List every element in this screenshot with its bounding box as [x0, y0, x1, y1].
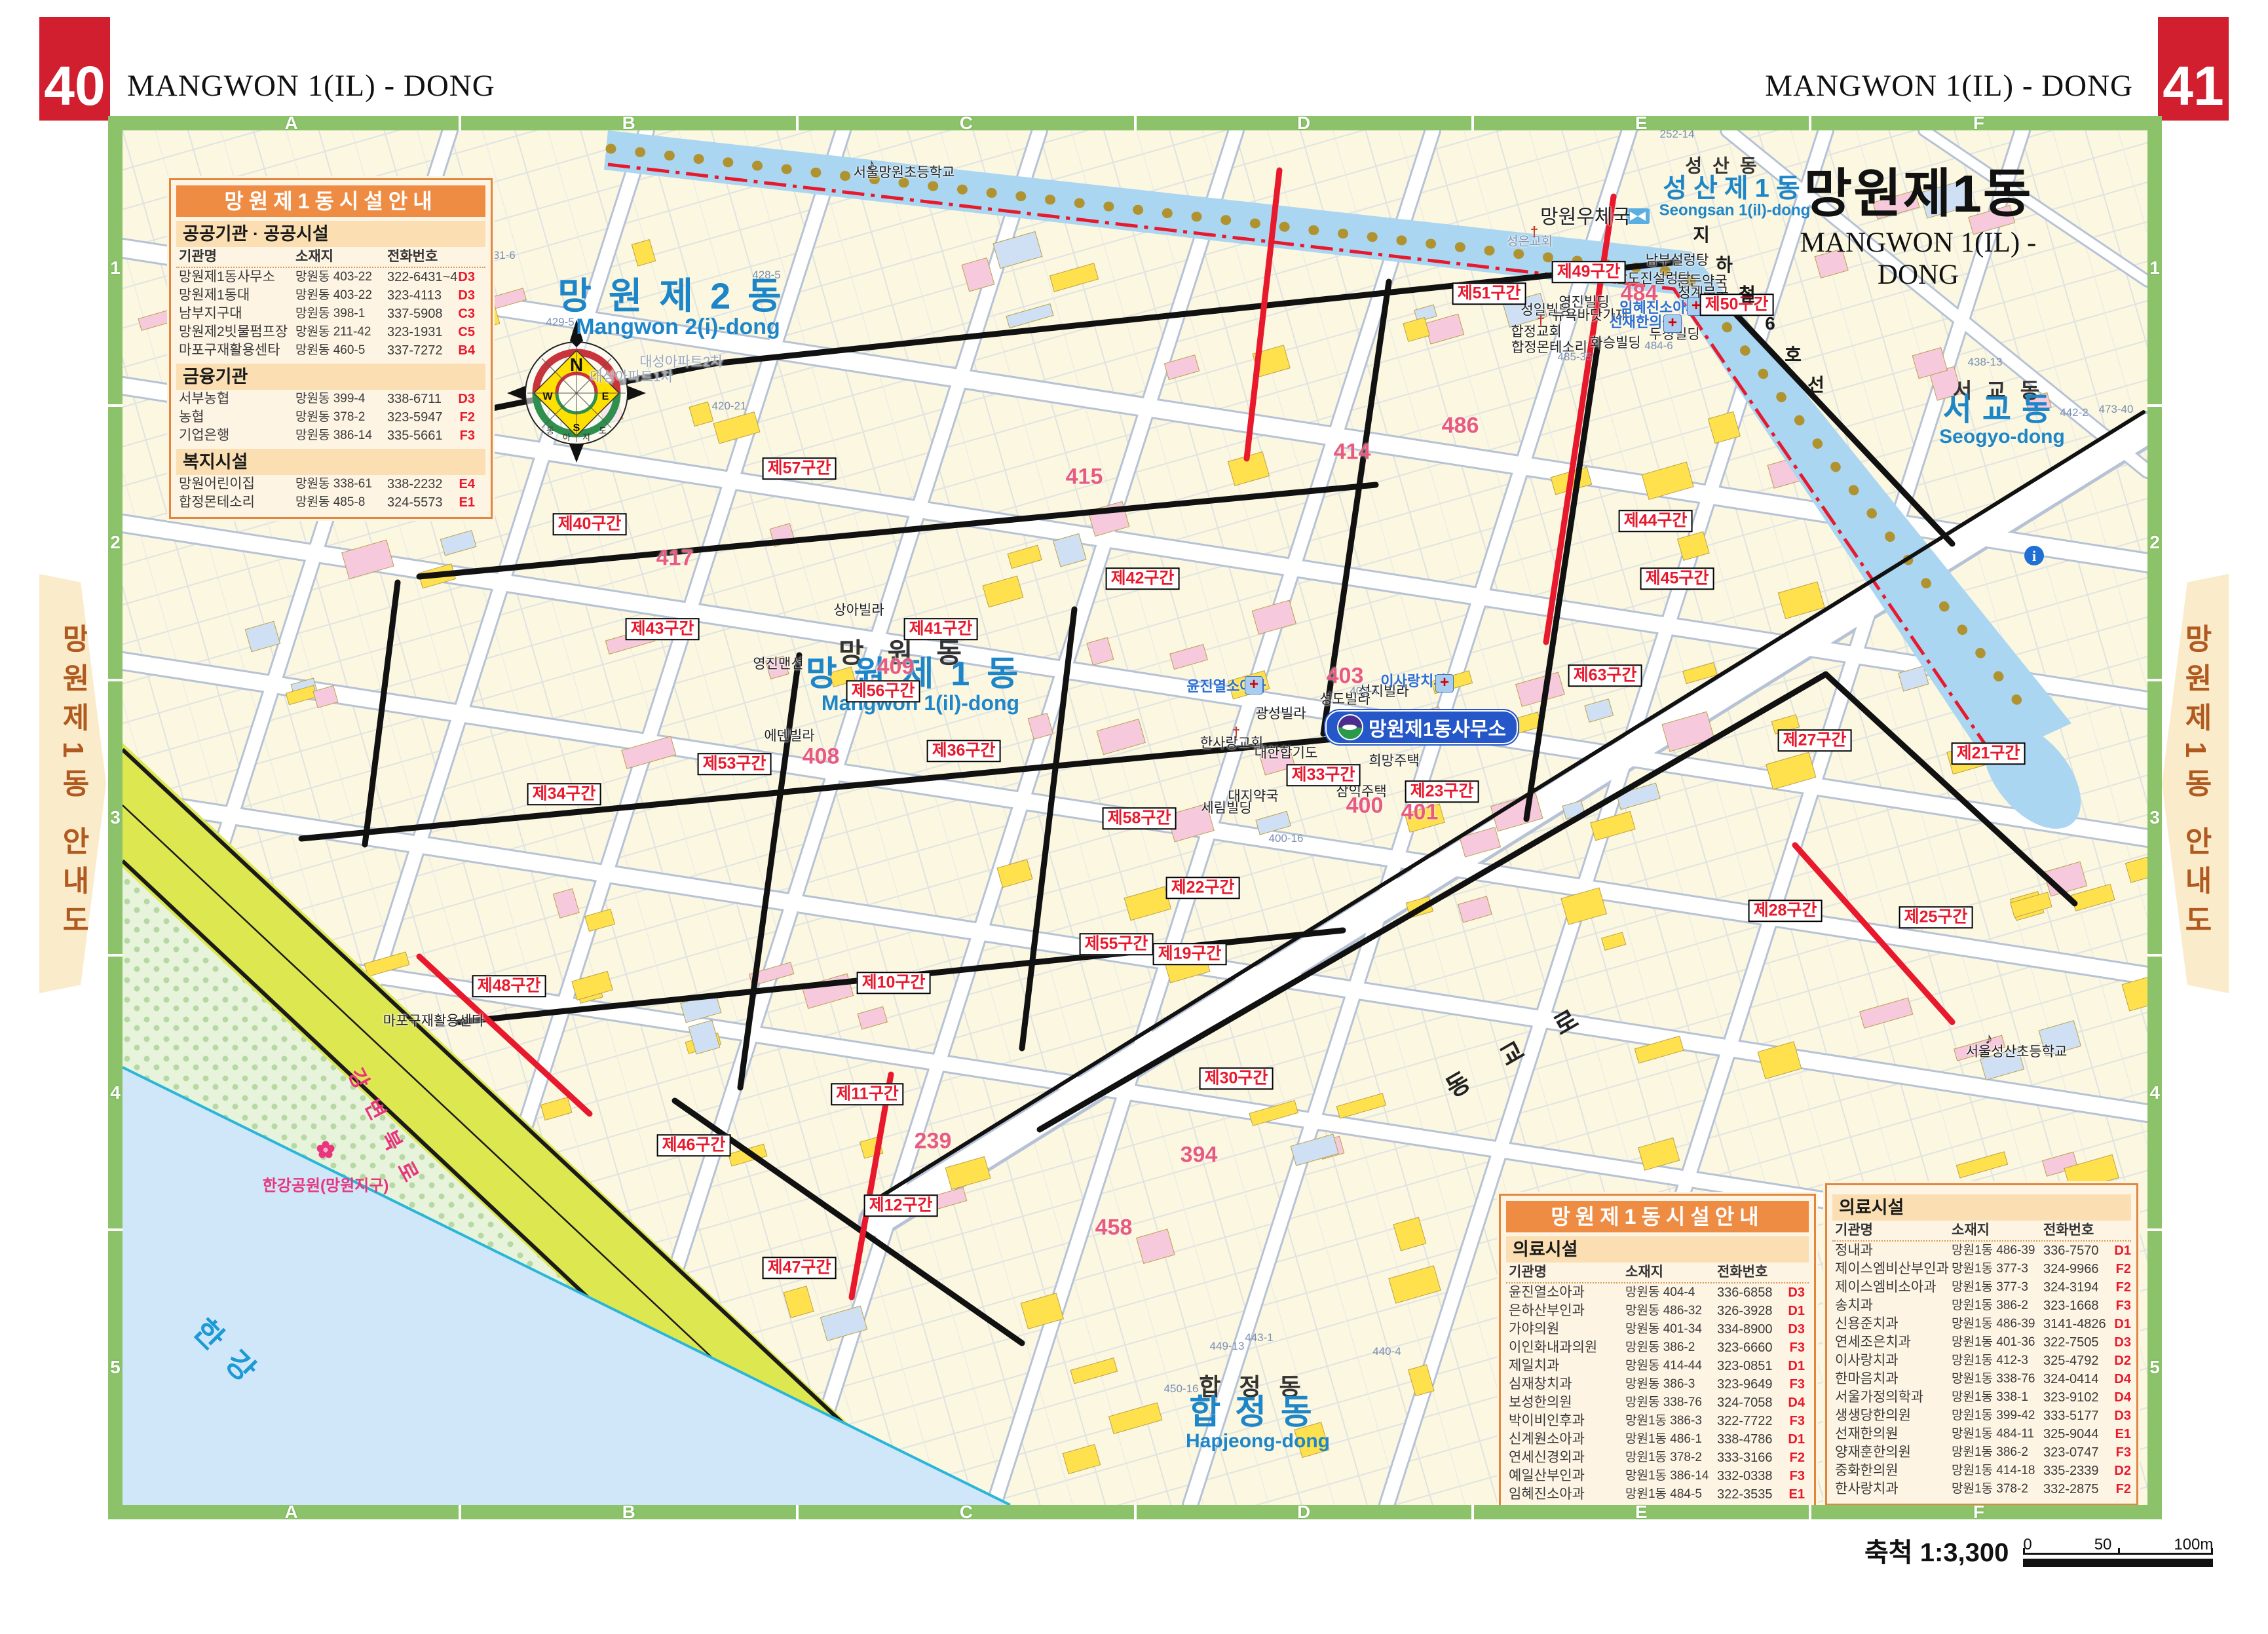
building-label: 남부설렁탕 [1646, 250, 1709, 269]
grid-letter-bottom-E: E [1628, 1505, 1654, 1519]
map-area-label: 망원제2동Mangwon 2(i)-dong [558, 277, 798, 339]
table-row: 이사랑치과망원1동 412-3325-4792D2 [1832, 1352, 2131, 1370]
map-area-label: 성산제1동Seongsan 1(il)-dong [1659, 174, 1811, 218]
road-section-label: 제55구간 [1080, 933, 1154, 955]
building-label: 서울성산초등학교 [1966, 1041, 2068, 1061]
facility-name: 이인화내과의원 [1509, 1339, 1625, 1357]
block-number: 414 [1334, 440, 1371, 465]
block-number: 415 [1066, 465, 1103, 490]
medical-table-right: 의료시설기관명소재지전화번호정내과망원1동 486-39336-7570D1제이… [1825, 1183, 2138, 1505]
grid-tick [108, 404, 123, 407]
facility-phone: 324-0414 [2043, 1370, 2111, 1388]
column-header: 전화번호 [1717, 1263, 1809, 1282]
facility-phone: 323-4113 [387, 286, 455, 305]
facility-phone: 322-3535 [1717, 1485, 1785, 1504]
church-cross-icon: † [1537, 313, 1545, 330]
block-number: 409 [877, 655, 915, 680]
facility-phone: 323-1931 [387, 323, 455, 341]
grid-reference: F3 [455, 427, 475, 445]
side-ribbon-right-text: 망원제1동 안내도 [2174, 624, 2216, 944]
table-row: 망원제1동사무소망원동 403-22322-6431~4D3 [176, 268, 485, 286]
table-title: 망원제1동시설안내 [176, 185, 485, 217]
scale-line [2023, 1553, 2213, 1555]
grid-number-left-4: 4 [108, 1083, 123, 1103]
facility-name: 망원제1동대 [179, 286, 295, 305]
grid-tick [2147, 679, 2162, 681]
facility-name: 생생당한의원 [1835, 1407, 1952, 1425]
grid-tick [2147, 1228, 2162, 1231]
road-section-label: 제41구간 [904, 618, 978, 640]
table-section-header: 공공기관 · 공공시설 [176, 221, 485, 247]
grid-reference: F3 [1785, 1375, 1805, 1394]
grid-reference: F2 [1785, 1449, 1805, 1467]
map-area-label: 망원제1동Mangwon 1(il)-dong [806, 656, 1035, 714]
table-row: 신용준치과망원1동 486-393141-4826D1 [1832, 1315, 2131, 1333]
facility-guide-table: 망원제1동시설안내공공기관 · 공공시설기관명소재지전화번호망원제1동사무소망원… [169, 178, 493, 519]
page-number-right: 41 [2158, 17, 2229, 121]
facility-address: 망원1동 399-42 [1952, 1407, 2043, 1425]
facility-phone: 323-9102 [2043, 1388, 2111, 1407]
grid-reference: F2 [2111, 1278, 2131, 1297]
grid-reference: E4 [455, 475, 475, 493]
facility-name: 정내과 [1835, 1242, 1952, 1260]
grid-reference: F2 [2111, 1260, 2131, 1278]
facility-address: 망원1동 486-39 [1952, 1242, 2043, 1260]
grid-tick [1809, 116, 1811, 130]
table-column-headers: 기관명소재지전화번호 [176, 247, 485, 268]
facility-name: 윤진열소아과 [1509, 1283, 1625, 1302]
road-section-label: 제34구간 [527, 783, 601, 805]
table-row: 중화한의원망원1동 414-18335-2339D2 [1832, 1462, 2131, 1480]
grid-reference: D1 [2111, 1315, 2131, 1333]
facility-address: 망원1동 377-3 [1952, 1260, 2043, 1278]
road-section-label: 제49구간 [1552, 261, 1626, 283]
lot-number: 442-2 [2060, 406, 2088, 419]
grid-reference: D1 [2111, 1242, 2131, 1260]
facility-phone: 325-9044 [2043, 1425, 2111, 1443]
grid-reference: D2 [2111, 1462, 2131, 1480]
facility-address: 망원동 401-34 [1625, 1320, 1717, 1339]
table-row: 연세조은치과망원1동 401-36322-7505D3 [1832, 1333, 2131, 1352]
building-label: 대한합기도 [1255, 742, 1318, 762]
building-label: 에덴빌라 [764, 725, 814, 745]
grid-reference: D3 [2111, 1407, 2131, 1425]
side-ribbon-left: 망원제1동 안내도 [39, 574, 106, 993]
map-title-korean: 망원제1동 [1781, 168, 2056, 220]
church-cross-icon: † [1530, 223, 1538, 240]
column-header: 전화번호 [387, 247, 485, 267]
facility-address: 망원1동 338-1 [1952, 1388, 2043, 1407]
grid-reference: E1 [2111, 1425, 2131, 1443]
grid-tick [796, 1505, 799, 1519]
facility-name: 마포구재활용센타 [179, 341, 295, 360]
grid-tick [108, 1228, 123, 1231]
facility-phone: 335-2339 [2043, 1462, 2111, 1480]
table-row: 은하산부인과망원동 486-32326-3928D1 [1506, 1302, 1809, 1320]
grid-reference: F2 [455, 408, 475, 427]
grid-tick [2147, 404, 2162, 407]
column-header: 소재지 [295, 247, 387, 267]
facility-address: 망원동 386-2 [1625, 1339, 1717, 1357]
subway-line-label-char: 철 [1739, 280, 1756, 307]
lot-number: 429-5 [546, 316, 574, 329]
grid-reference: F3 [1785, 1467, 1805, 1485]
map-canvas: i [123, 130, 2147, 1505]
road-section-label: 제12구간 [864, 1194, 938, 1217]
grid-number-left-3: 3 [108, 808, 123, 827]
road-section-label: 제56구간 [846, 680, 920, 702]
facility-address: 망원1동 412-3 [1952, 1352, 2043, 1370]
facility-name: 남부지구대 [179, 305, 295, 323]
grid-reference: D2 [2111, 1352, 2131, 1370]
block-number: 484 [1621, 281, 1658, 307]
facility-phone: 338-2232 [387, 475, 455, 493]
subway-line-label-char: 호 [1785, 341, 1802, 367]
block-number: 408 [803, 744, 840, 770]
facility-phone: 324-7058 [1717, 1394, 1785, 1412]
side-ribbon-right: 망원제1동 안내도 [2162, 574, 2229, 993]
grid-tick [108, 679, 123, 681]
facility-name: 한사랑치과 [1835, 1480, 1952, 1498]
grid-reference: D4 [2111, 1370, 2131, 1388]
facility-address: 망원1동 386-3 [1625, 1412, 1717, 1430]
facility-phone: 324-9966 [2043, 1260, 2111, 1278]
facility-phone: 332-0338 [1717, 1467, 1785, 1485]
map-title: 망원제1동 MANGWON 1(IL) - DONG [1781, 168, 2056, 291]
block-number: 394 [1181, 1143, 1218, 1168]
facility-phone: 3141-4826 [2043, 1315, 2111, 1333]
table-row: 농협망원동 378-2323-5947F2 [176, 408, 485, 427]
grid-reference: D4 [2111, 1388, 2131, 1407]
facility-name: 농협 [179, 408, 295, 427]
facility-address: 망원1동 378-2 [1625, 1449, 1717, 1467]
road-section-label: 제36구간 [927, 740, 1001, 762]
lot-number: 485-35 [1558, 351, 1593, 364]
table-row: 망원제2빗물펌프장망원동 211-42323-1931C5 [176, 323, 485, 341]
dong-office-label: 망원제1동사무소 [1369, 713, 1506, 742]
facility-phone: 337-5908 [387, 305, 455, 323]
area-label-korean: 합정동 [1186, 1395, 1330, 1431]
page-header-right: MANGWON 1(IL) - DONG [1765, 68, 2133, 104]
lot-number: 449-13 [1210, 1340, 1245, 1353]
grid-reference: F3 [2111, 1297, 2131, 1315]
grid-reference: E1 [455, 493, 475, 512]
column-header: 기관명 [1835, 1221, 1952, 1240]
subway-line-label-char: 6 [1765, 313, 1775, 334]
facility-phone: 325-4792 [2043, 1352, 2111, 1370]
facility-name: 제일치과 [1509, 1357, 1625, 1375]
facility-name: 제이스엠비소아과 [1835, 1278, 1952, 1297]
facility-address: 망원동 211-42 [295, 323, 387, 341]
table-row: 양재훈한의원망원1동 386-2323-0747F3 [1832, 1443, 2131, 1462]
facility-name: 신용준치과 [1835, 1315, 1952, 1333]
lot-number: 428-5 [752, 269, 780, 282]
dong-office-badge: 망원제1동사무소 [1325, 710, 1518, 744]
table-row: 제일치과망원동 414-44323-0851D1 [1506, 1357, 1809, 1375]
grid-letter-top-E: E [1628, 116, 1654, 130]
scale-tick-100: 100m [2174, 1536, 2213, 1553]
table-section-header: 복지시설 [176, 449, 485, 475]
hospital-cross-icon: + [1435, 674, 1454, 693]
subway-line-label-char: 선 [1807, 371, 1824, 397]
road-section-label: 제25구간 [1899, 906, 1973, 928]
facility-address: 망원동 460-5 [295, 341, 387, 360]
area-label-english: Mangwon 2(i)-dong [558, 316, 798, 339]
facility-address: 망원동 398-1 [295, 305, 387, 323]
lot-number: 443-1 [1245, 1331, 1273, 1344]
table-row: 정내과망원1동 486-39336-7570D1 [1832, 1242, 2131, 1260]
facility-phone: 324-5573 [387, 493, 455, 512]
facility-address: 망원동 399-4 [295, 390, 387, 408]
scale-ruler: 0 50 100m [2023, 1536, 2213, 1591]
grid-reference: D3 [2111, 1333, 2131, 1352]
area-label-english: Mangwon 1(il)-dong [806, 693, 1035, 715]
grid-reference: F2 [2111, 1480, 2131, 1498]
area-label-korean: 성산제1동 [1659, 174, 1811, 202]
area-label-korean: 성산동 [1685, 156, 1767, 175]
table-row: 선재한의원망원1동 484-11325-9044E1 [1832, 1425, 2131, 1443]
grid-reference: D1 [1785, 1302, 1805, 1320]
facility-phone: 323-9649 [1717, 1375, 1785, 1394]
building-label: 화승빌딩 [1590, 332, 1640, 352]
table-row: 예일산부인과망원1동 386-14332-0338F3 [1506, 1467, 1809, 1485]
grid-number-right-4: 4 [2147, 1083, 2162, 1103]
lot-number: 403-4 [1350, 685, 1378, 698]
scale-tick-50: 50 [2094, 1536, 2112, 1553]
facility-phone: 322-7505 [2043, 1333, 2111, 1352]
area-label-korean: 동교로 [1443, 987, 1617, 1103]
lot-number: 473-40 [2099, 403, 2134, 416]
facility-name: 제이스엠비산부인과 [1835, 1260, 1952, 1278]
facility-phone: 323-5947 [387, 408, 455, 427]
grid-tick [1471, 116, 1474, 130]
facility-name: 예일산부인과 [1509, 1467, 1625, 1485]
table-row: 기업은행망원동 386-14335-5661F3 [176, 427, 485, 445]
hospital-cross-icon: + [1663, 314, 1682, 333]
table-row: 한마음치과망원1동 338-76324-0414D4 [1832, 1370, 2131, 1388]
table-row: 한사랑치과망원1동 378-2332-2875F2 [1832, 1480, 2131, 1498]
facility-phone: 336-6858 [1717, 1283, 1785, 1302]
lot-number: 252-14 [1660, 130, 1695, 141]
column-header: 전화번호 [2043, 1221, 2131, 1240]
facility-address: 망원동 403-22 [295, 286, 387, 305]
road-section-label: 제45구간 [1640, 567, 1714, 590]
grid-reference: D3 [455, 268, 475, 286]
grid-number-left-5: 5 [108, 1358, 123, 1377]
facility-address: 망원1동 486-39 [1952, 1315, 2043, 1333]
lot-number: 440-4 [1372, 1345, 1401, 1358]
grid-letter-top-D: D [1291, 116, 1317, 130]
grid-reference: E1 [1785, 1485, 1805, 1504]
facility-address: 망원동 403-22 [295, 268, 387, 286]
table-row: 보성한의원망원동 338-76324-7058D4 [1506, 1394, 1809, 1412]
facility-address: 망원1동 486-1 [1625, 1430, 1717, 1449]
column-header: 기관명 [179, 247, 295, 267]
grid-letter-top-A: A [278, 116, 305, 130]
table-column-headers: 기관명소재지전화번호 [1506, 1263, 1809, 1283]
facility-name: 서울가정의학과 [1835, 1388, 1952, 1407]
grid-letter-bottom-B: B [616, 1505, 642, 1519]
facility-phone: 338-4786 [1717, 1430, 1785, 1449]
table-row: 서울가정의학과망원1동 338-1323-9102D4 [1832, 1388, 2131, 1407]
table-row: 심재창치과망원동 386-3323-9649F3 [1506, 1375, 1809, 1394]
atlas-page: 40 MANGWON 1(IL) - DONG MANGWON 1(IL) - … [0, 0, 2268, 1634]
facility-address: 망원동 404-4 [1625, 1283, 1717, 1302]
school-note-icon: ♪ [1985, 1030, 1993, 1048]
table-row: 가야의원망원동 401-34334-8900D3 [1506, 1320, 1809, 1339]
facility-name: 선재한의원 [1835, 1425, 1952, 1443]
table-row: 생생당한의원망원1동 399-42333-5177D3 [1832, 1407, 2131, 1425]
road-section-label: 제43구간 [626, 618, 700, 640]
grid-letter-bottom-F: F [1965, 1505, 1992, 1519]
table-section-header: 의료시설 [1832, 1194, 2131, 1221]
facility-name: 가야의원 [1509, 1320, 1625, 1339]
facility-name: 망원제1동사무소 [179, 268, 295, 286]
building-label: 상아빌라 [833, 599, 884, 619]
grid-number-right-5: 5 [2147, 1358, 2162, 1377]
facility-address: 망원1동 414-18 [1952, 1462, 2043, 1480]
grid-letter-bottom-D: D [1291, 1505, 1317, 1519]
grid-tick [2147, 954, 2162, 957]
road-section-label: 제53구간 [698, 753, 772, 775]
grid-reference: F3 [1785, 1339, 1805, 1357]
facility-phone: 323-1668 [2043, 1297, 2111, 1315]
table-section-header: 의료시설 [1506, 1236, 1809, 1263]
table-column-headers: 기관명소재지전화번호 [1832, 1221, 2131, 1242]
facility-address: 망원동 386-14 [295, 427, 387, 445]
table-row: 마포구재활용센타망원동 460-5337-7272B4 [176, 341, 485, 360]
medical-table-left: 망원제1동시설안내의료시설기관명소재지전화번호윤진열소아과망원동 404-433… [1499, 1194, 1816, 1505]
facility-phone: 322-6431~4 [387, 268, 455, 286]
map-title-english: MANGWON 1(IL) - DONG [1781, 227, 2056, 291]
area-label-english: Seongsan 1(il)-dong [1659, 202, 1811, 218]
map-area-label: 한강공원(망원지구) [263, 1177, 389, 1194]
grid-letter-top-B: B [616, 116, 642, 130]
building-label: 대지약국 [1228, 786, 1278, 805]
building-label: 광성빌라 [1255, 703, 1306, 723]
facility-name: 망원어린이집 [179, 475, 295, 493]
facility-name: 망원제2빗물펌프장 [179, 323, 295, 341]
road-section-label: 제27구간 [1778, 729, 1852, 751]
lot-number: 400-16 [1269, 832, 1304, 845]
road-section-label: 제47구간 [763, 1257, 837, 1279]
grid-tick [1471, 1505, 1474, 1519]
building-label: 대성아파트1차 [590, 366, 673, 386]
facility-phone: 324-3194 [2043, 1278, 2111, 1297]
road-section-label: 제28구간 [1748, 900, 1823, 922]
building-label: 희망주택 [1369, 750, 1419, 770]
road-section-label: 제11구간 [831, 1083, 903, 1105]
road-section-label: 제50구간 [1700, 294, 1774, 316]
lot-number: 420-21 [712, 400, 747, 413]
grid-reference: F3 [2111, 1443, 2131, 1462]
facility-name: 연세조은치과 [1835, 1333, 1952, 1352]
facility-name: 보성한의원 [1509, 1394, 1625, 1412]
facility-name: 중화한의원 [1835, 1462, 1952, 1480]
facility-phone: 333-3166 [1717, 1449, 1785, 1467]
school-note-icon: ♪ [867, 156, 875, 174]
facility-phone: 323-0851 [1717, 1357, 1785, 1375]
table-row: 망원제1동대망원동 403-22323-4113D3 [176, 286, 485, 305]
page-number-left: 40 [39, 17, 110, 121]
table-row: 남부지구대망원동 398-1337-5908C3 [176, 305, 485, 323]
area-label-korean: 한강 [188, 1314, 274, 1399]
facility-name: 연세신경외과 [1509, 1449, 1625, 1467]
grid-tick [1134, 116, 1137, 130]
facility-name: 이사랑치과 [1835, 1352, 1952, 1370]
scale-label: 축척 1:3,300 [1864, 1532, 2009, 1591]
grid-reference: D1 [1785, 1430, 1805, 1449]
road-section-label: 제48구간 [472, 975, 546, 997]
facility-phone: 326-3928 [1717, 1302, 1785, 1320]
grid-reference: D3 [1785, 1283, 1805, 1302]
facility-address: 망원동 414-44 [1625, 1357, 1717, 1375]
table-row: 신계원소아과망원1동 486-1338-4786D1 [1506, 1430, 1809, 1449]
road-section-label: 제22구간 [1166, 877, 1240, 899]
lot-number: 450-16 [1164, 1382, 1199, 1396]
building-label: 영진맨션 [753, 653, 803, 673]
scale-block [2023, 1559, 2213, 1567]
facility-address: 망원1동 338-76 [1952, 1370, 2043, 1388]
grid-reference: C5 [455, 323, 475, 341]
area-label-korean: 망원제2동 [558, 277, 798, 316]
grid-tick [459, 1505, 461, 1519]
facility-phone: 336-7570 [2043, 1242, 2111, 1260]
grid-tick [1809, 1505, 1811, 1519]
table-row: 송치과망원1동 386-2323-1668F3 [1832, 1297, 2131, 1315]
grid-number-right-2: 2 [2147, 533, 2162, 552]
grid-reference: B4 [455, 341, 475, 360]
road-section-label: 제33구간 [1287, 764, 1361, 786]
facility-phone: 334-8900 [1717, 1320, 1785, 1339]
facility-phone: 338-6711 [387, 390, 455, 408]
column-header: 기관명 [1509, 1263, 1625, 1282]
grid-tick [1134, 1505, 1137, 1519]
grid-letter-bottom-C: C [953, 1505, 979, 1519]
page-header-left: MANGWON 1(IL) - DONG [127, 68, 495, 104]
facility-address: 망원동 486-32 [1625, 1302, 1717, 1320]
grid-reference: D3 [455, 390, 475, 408]
lot-number: 484-6 [1644, 339, 1673, 352]
facility-name: 한마음치과 [1835, 1370, 1952, 1388]
road-section-label: 제19구간 [1153, 943, 1227, 965]
map-frame: i [108, 116, 2162, 1519]
block-number: 458 [1095, 1215, 1133, 1241]
grid-tick [459, 116, 461, 130]
facility-address: 망원동 386-3 [1625, 1375, 1717, 1394]
facility-address: 망원1동 386-14 [1625, 1467, 1717, 1485]
road-section-label: 제57구간 [763, 457, 837, 480]
table-row: 박이비인후과망원1동 386-3322-7722F3 [1506, 1412, 1809, 1430]
map-area-label: 동교로 [1443, 987, 1617, 1103]
road-section-label: 제30구간 [1200, 1067, 1274, 1090]
lot-number: 438-13 [1968, 356, 2003, 369]
road-section-label: 제21구간 [1952, 742, 2026, 765]
road-section-label: 제58구간 [1103, 807, 1177, 829]
grid-reference: D4 [1785, 1394, 1805, 1412]
table-section-header: 금융기관 [176, 364, 485, 390]
facility-name: 합정몬테소리 [179, 493, 295, 512]
facility-name: 신계원소아과 [1509, 1430, 1625, 1449]
grid-letter-bottom-A: A [278, 1505, 305, 1519]
facility-phone: 322-7722 [1717, 1412, 1785, 1430]
table-row: 윤진열소아과망원동 404-4336-6858D3 [1506, 1283, 1809, 1302]
facility-address: 망원동 338-76 [1625, 1394, 1717, 1412]
grid-reference: F3 [1785, 1412, 1805, 1430]
area-label-english: Hapjeong-dong [1186, 1431, 1330, 1452]
table-row: 합정몬테소리망원동 485-8324-5573E1 [176, 493, 485, 512]
table-row: 제이스엠비소아과망원1동 377-3324-3194F2 [1832, 1278, 2131, 1297]
